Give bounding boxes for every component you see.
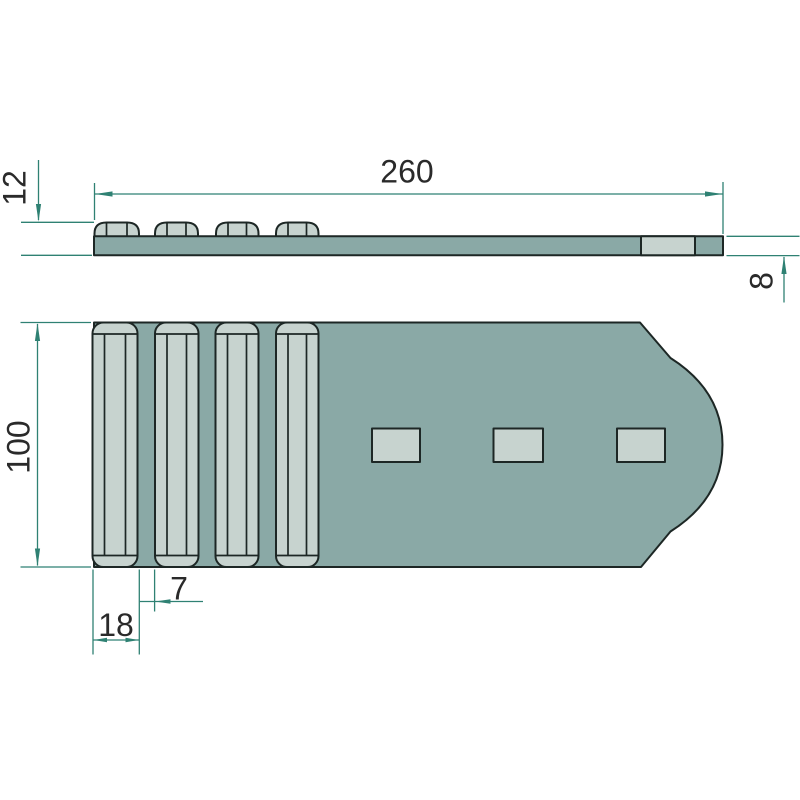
rib — [216, 323, 259, 568]
rib-bump — [216, 223, 259, 238]
side-view-plate — [94, 236, 723, 255]
rib — [93, 323, 138, 568]
hole — [617, 429, 665, 463]
rib — [276, 323, 319, 568]
dimension-label-rib-gap: 7 — [170, 571, 188, 607]
rib-bump — [276, 223, 319, 238]
hole — [372, 429, 420, 463]
rib-bump — [95, 223, 140, 238]
dimension-label-overall-length: 260 — [380, 154, 433, 190]
rib — [155, 323, 199, 568]
hole — [494, 429, 544, 463]
plan-view — [93, 323, 723, 568]
dimension-label-plate-thickness: 8 — [744, 272, 780, 290]
dimension-label-plate-width: 100 — [1, 420, 37, 473]
dimension-label-rib-width: 18 — [98, 607, 134, 643]
plan-view-holes — [372, 429, 665, 463]
rib-bump — [155, 223, 198, 238]
dimension-label-overall-height: 12 — [0, 170, 33, 206]
side-view-hole-section — [641, 236, 695, 255]
technical-drawing: 260 12 8 100 — [0, 0, 800, 800]
